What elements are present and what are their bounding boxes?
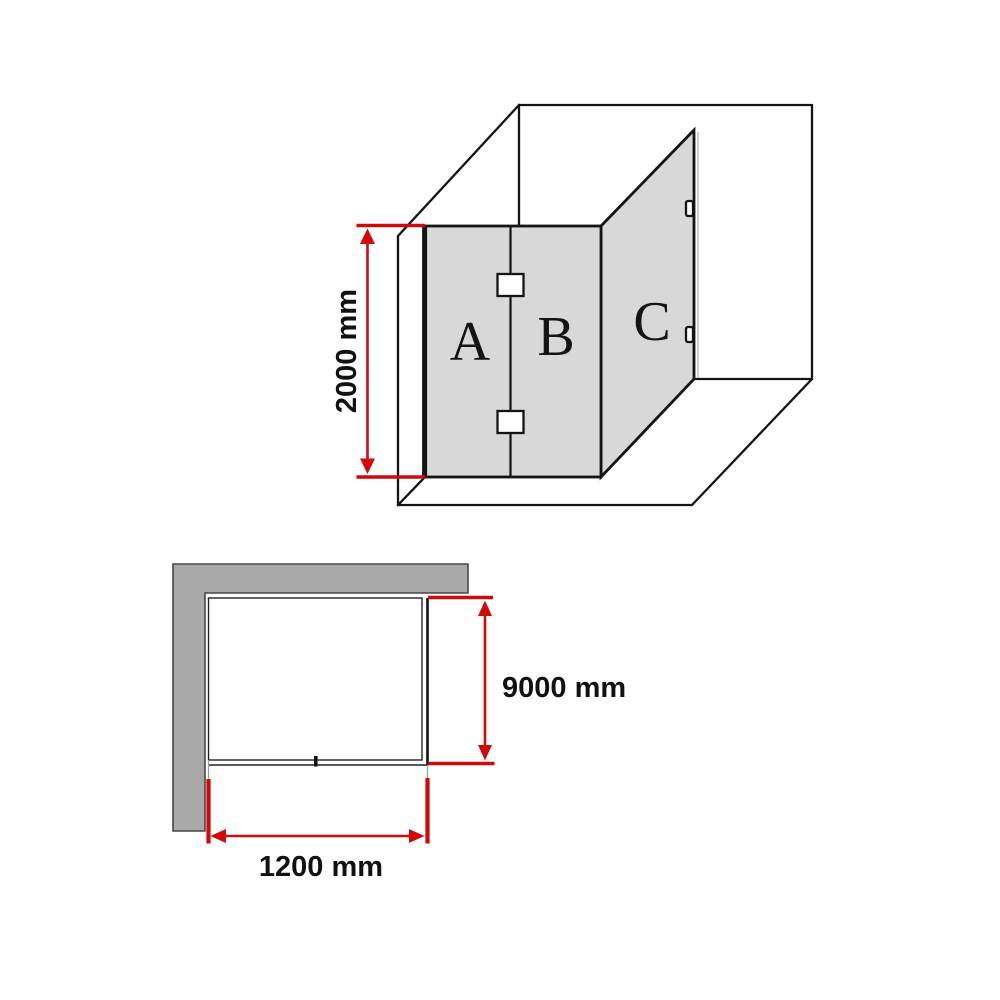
width-dim-arrow-right-icon [409,829,425,843]
depth-dim-label: 9000 mm [502,672,626,704]
diagram-canvas: 2000 mm A B C 9000 mm 1200 mm [0,0,1000,1000]
shower-screen-diagram: 2000 mm A B C 9000 mm 1200 mm [0,0,1000,1000]
width-dim-label: 1200 mm [259,851,383,883]
height-dim-label: 2000 mm [331,289,363,413]
panel-c-label: C [633,291,670,353]
depth-dim-arrow-down-icon [478,745,492,761]
plan-diagram: 9000 mm 1200 mm [173,564,626,883]
hinge-top-icon [498,274,524,296]
wall-bracket-bottom-icon [686,327,693,342]
hinge-bottom-icon [498,411,524,433]
panel-b-label: B [537,306,574,368]
width-dim-arrow-left-icon [211,829,227,843]
panel-a-label: A [450,311,491,373]
height-dim-arrow-down-icon [360,459,375,475]
depth-dim-arrow-up-icon [478,601,492,617]
wall-bracket-top-icon [686,201,693,216]
plan-hinge-mark [314,756,318,767]
plan-enclosure-outline [209,598,423,760]
elevation-diagram: 2000 mm A B C [331,105,812,505]
height-dim-arrow-up-icon [360,229,375,245]
